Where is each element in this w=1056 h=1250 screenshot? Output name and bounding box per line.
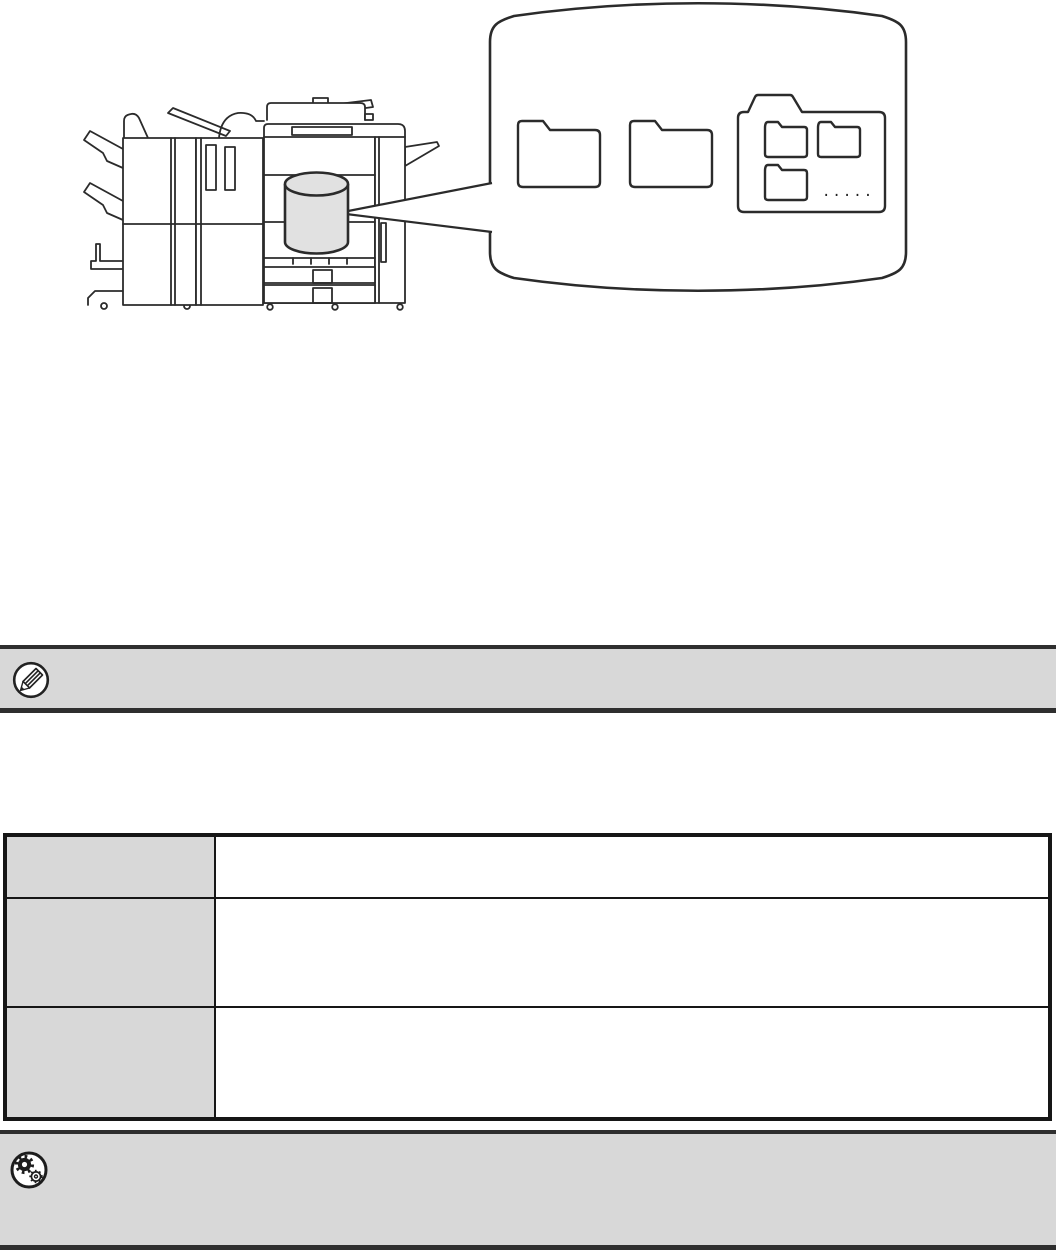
table-content-cell: [216, 1008, 1048, 1117]
subfolder-icon: [765, 165, 807, 200]
table-content-cell: [216, 837, 1048, 897]
settings-banner: [0, 1130, 1056, 1250]
subfolder-icon: [765, 122, 807, 157]
table-header-cell: [7, 899, 216, 1006]
folder-icon: [630, 121, 712, 187]
more-folders-dots: .....: [822, 184, 874, 200]
subfolder-icon: [818, 122, 860, 157]
table-content-cell: [216, 899, 1048, 1006]
table-header-cell: [7, 837, 216, 897]
settings-gears-icon: [9, 1149, 49, 1191]
table-row: [7, 1006, 1048, 1117]
note-banner: [0, 645, 1056, 713]
hard-drive-cylinder: [285, 173, 348, 254]
table-row: [7, 837, 1048, 897]
machine-hdd-illustration: .....: [60, 0, 920, 330]
table-header-cell: [7, 1008, 216, 1117]
note-pencil-icon: [12, 660, 50, 700]
folder-icon: [518, 121, 600, 187]
manual-page: .....: [0, 0, 1056, 1250]
table-row: [7, 897, 1048, 1006]
info-table: [3, 833, 1052, 1121]
